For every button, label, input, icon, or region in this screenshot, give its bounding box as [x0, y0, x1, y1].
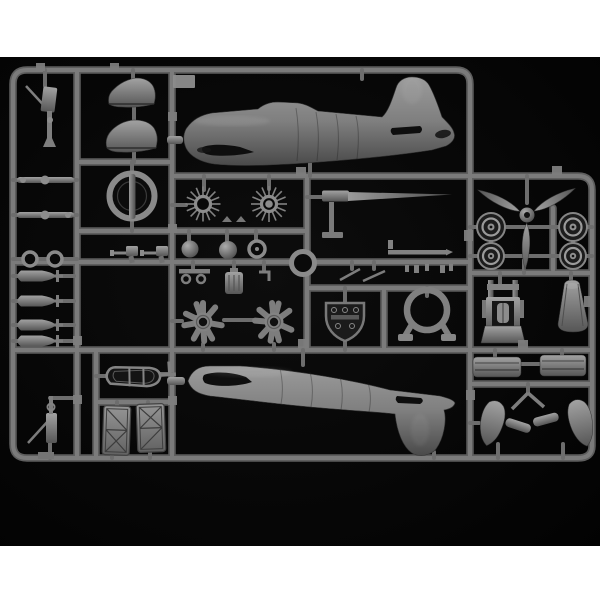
sprue-illustration — [0, 57, 600, 546]
center-ring — [292, 252, 315, 275]
cowl-front-ring — [110, 174, 155, 220]
product-photo — [0, 57, 600, 546]
small-wheel — [249, 241, 265, 257]
page — [0, 0, 600, 600]
engine-block — [481, 280, 525, 343]
